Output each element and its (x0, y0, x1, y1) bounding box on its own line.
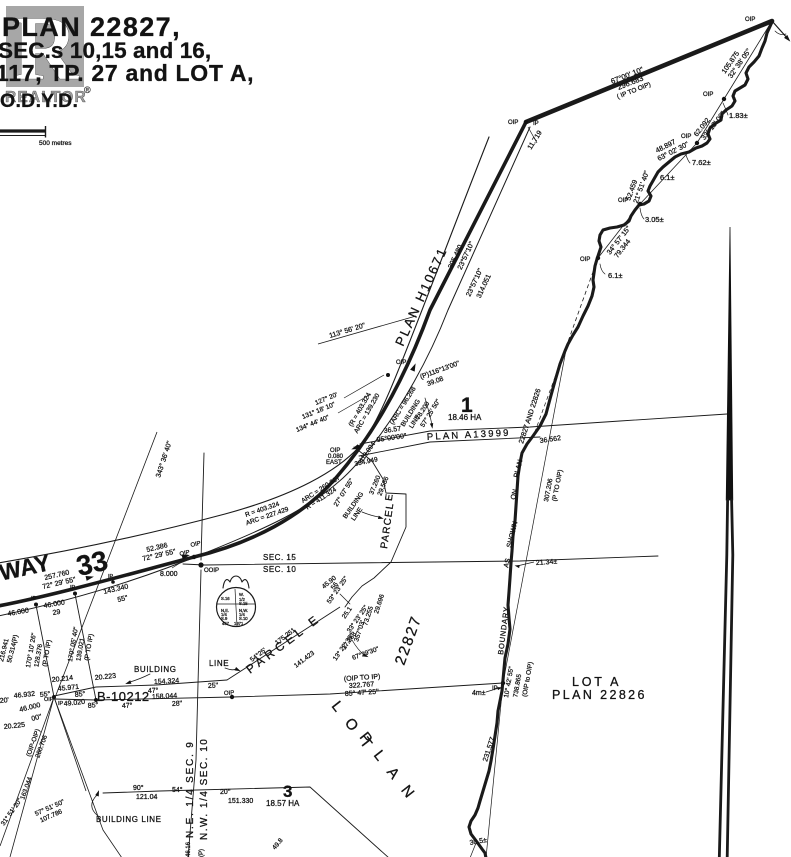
svg-text:IP: IP (108, 574, 114, 580)
svg-text:4m±: 4m± (472, 690, 486, 697)
svg-text:SEC. 15: SEC. 15 (263, 553, 296, 562)
svg-text:54°: 54° (172, 786, 183, 794)
svg-text:IP: IP (533, 121, 539, 127)
svg-text:18.57 HA: 18.57 HA (266, 799, 300, 808)
svg-text:500 metres: 500 metres (39, 140, 72, 147)
svg-text:121.04: 121.04 (136, 794, 158, 801)
svg-text:28'': 28'' (172, 700, 183, 708)
svg-text:117, TP. 27 and LOT A,: 117, TP. 27 and LOT A, (0, 60, 254, 86)
svg-text:25'': 25'' (208, 682, 219, 690)
svg-text:B-10212: B-10212 (97, 689, 150, 704)
svg-text:6.1±: 6.1± (608, 271, 623, 280)
svg-text:90°: 90° (133, 784, 144, 792)
svg-text:OIP: OIP (703, 92, 713, 98)
svg-text:46.16: 46.16 (186, 841, 192, 857)
svg-text:S.15: S.15 (239, 601, 248, 606)
svg-text:OOIP: OOIP (204, 568, 219, 574)
svg-text:151.330: 151.330 (228, 798, 253, 805)
svg-text:29: 29 (52, 609, 61, 617)
svg-text:85°: 85° (87, 701, 99, 710)
svg-text:EAST: EAST (326, 460, 342, 466)
svg-text:6.1±: 6.1± (660, 173, 675, 182)
svg-text:457: 457 (222, 621, 230, 626)
svg-text:OIP: OIP (745, 17, 755, 23)
svg-text:21.34±: 21.34± (536, 559, 558, 567)
svg-text:8.000: 8.000 (160, 571, 178, 578)
svg-text:18.46 HA: 18.46 HA (448, 413, 482, 422)
svg-text:OIP: OIP (396, 360, 406, 366)
svg-text:OIP: OIP (618, 198, 628, 204)
svg-text:N.W. 1/4 SEC. 10: N.W. 1/4 SEC. 10 (199, 738, 210, 840)
svg-text:OIP: OIP (681, 134, 691, 140)
svg-text:IP: IP (31, 596, 37, 602)
svg-text:OIP: OIP (580, 257, 590, 263)
svg-text:154.324: 154.324 (154, 678, 180, 686)
svg-text:®: ® (84, 85, 91, 95)
svg-text:LOT A: LOT A (572, 675, 621, 689)
svg-text:7.62±: 7.62± (692, 158, 711, 167)
svg-text:47°: 47° (122, 701, 133, 710)
svg-text:85°: 85° (74, 690, 86, 699)
svg-text:PLAN 22826: PLAN 22826 (552, 688, 647, 702)
svg-text:OIP: OIP (224, 690, 235, 697)
svg-text:1.83±: 1.83± (729, 111, 748, 120)
svg-text:IP: IP (58, 701, 64, 707)
svg-text:IP: IP (70, 585, 76, 591)
svg-text:3.05±: 3.05± (645, 215, 664, 224)
svg-text:158.044: 158.044 (152, 693, 178, 701)
svg-text:S.16: S.16 (221, 596, 230, 601)
svg-text:OIP: OIP (508, 120, 518, 126)
svg-text:1971: 1971 (234, 621, 244, 626)
svg-text:O.D.Y.D.: O.D.Y.D. (0, 90, 78, 112)
svg-text:BUILDING: BUILDING (134, 665, 177, 674)
svg-text:(P): (P) (199, 849, 205, 857)
svg-text:20': 20' (0, 697, 9, 705)
svg-text:BUILDING LINE: BUILDING LINE (96, 815, 162, 824)
svg-text:SEC. 10: SEC. 10 (263, 565, 296, 574)
svg-text:20'': 20'' (220, 789, 230, 796)
svg-text:LINE: LINE (209, 659, 229, 668)
svg-text:N.E. 1/4 SEC. 9: N.E. 1/4 SEC. 9 (185, 740, 196, 838)
